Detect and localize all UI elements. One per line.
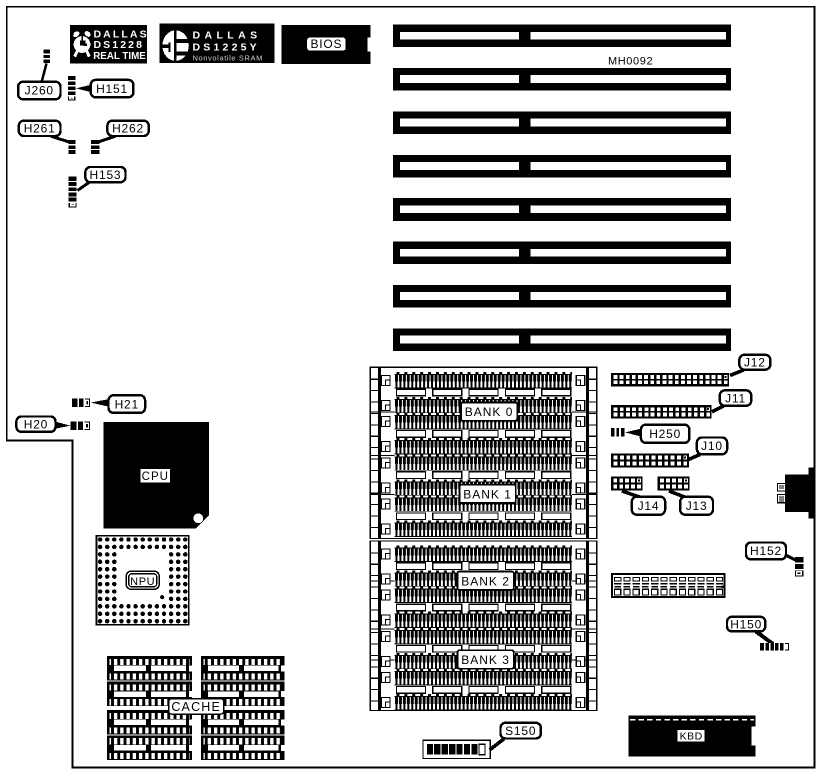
svg-text:DS1225Y: DS1225Y <box>193 41 260 53</box>
svg-text:J12: J12 <box>744 355 766 369</box>
svg-text:DS1228: DS1228 <box>94 39 145 51</box>
svg-text:J11: J11 <box>725 391 746 405</box>
svg-text:BANK 3: BANK 3 <box>461 653 510 667</box>
svg-text:BIOS: BIOS <box>310 37 342 51</box>
svg-text:REAL TIME: REAL TIME <box>93 51 146 62</box>
svg-text:J260: J260 <box>25 84 54 98</box>
svg-text:Nonvolatile SRAM: Nonvolatile SRAM <box>193 54 263 63</box>
svg-text:BANK 2: BANK 2 <box>461 574 510 588</box>
svg-text:H150: H150 <box>730 617 762 631</box>
svg-text:KBD: KBD <box>680 731 703 743</box>
svg-text:H250: H250 <box>649 427 681 441</box>
svg-text:H20: H20 <box>24 417 48 431</box>
svg-text:BANK 0: BANK 0 <box>465 405 514 419</box>
svg-text:S150: S150 <box>505 724 536 738</box>
svg-text:J14: J14 <box>638 499 660 513</box>
svg-text:H21: H21 <box>115 397 139 411</box>
svg-text:J13: J13 <box>686 499 708 513</box>
svg-text:DALLAS: DALLAS <box>193 30 262 42</box>
svg-text:MH0092: MH0092 <box>608 56 653 68</box>
svg-text:H262: H262 <box>112 122 144 136</box>
svg-text:BANK 1: BANK 1 <box>463 488 512 502</box>
svg-text:J10: J10 <box>701 439 723 453</box>
svg-text:CACHE: CACHE <box>171 700 221 714</box>
svg-text:H152: H152 <box>750 544 782 558</box>
svg-text:H151: H151 <box>96 82 128 96</box>
svg-text:NPU: NPU <box>130 576 155 588</box>
svg-text:H261: H261 <box>24 122 56 136</box>
svg-text:CPU: CPU <box>142 471 169 483</box>
svg-text:H153: H153 <box>90 168 122 182</box>
